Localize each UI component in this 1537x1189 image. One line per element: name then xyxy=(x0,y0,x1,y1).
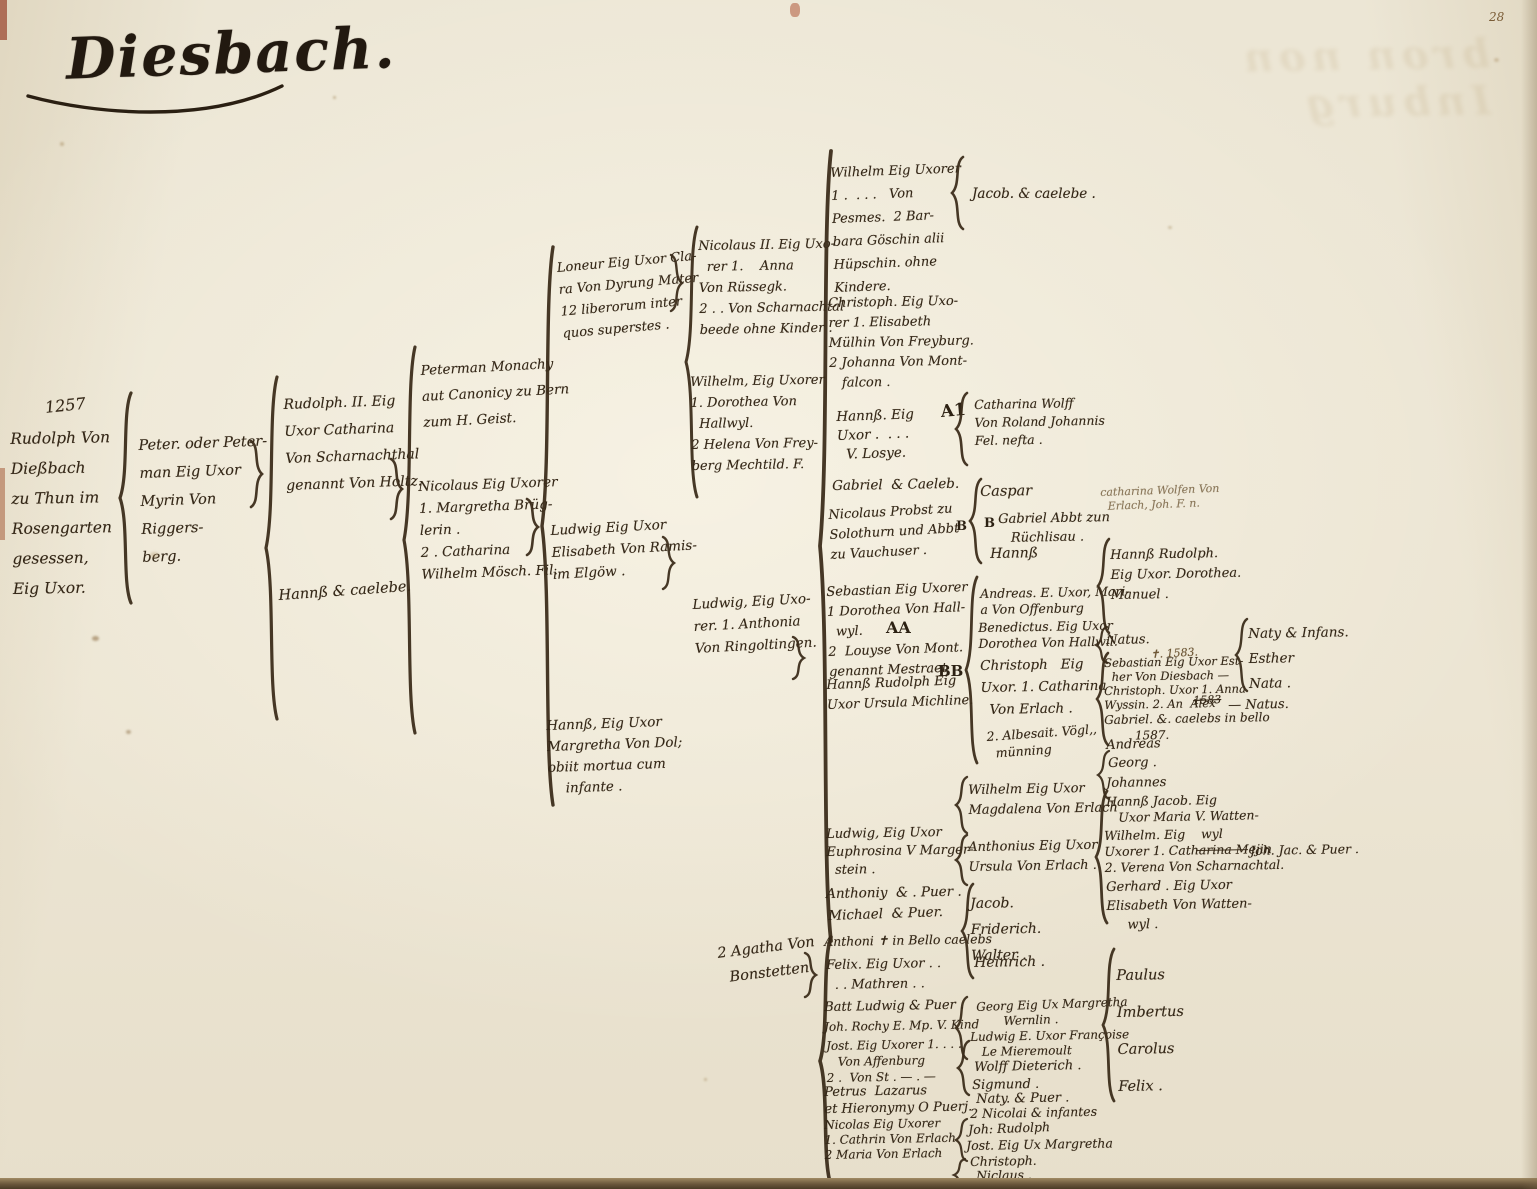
entry-wolff-dieterich: Wolff Dieterich . xyxy=(974,1058,1104,1075)
edge-mark xyxy=(0,468,5,540)
ref-mark-b-gabriel: B xyxy=(984,516,995,531)
entry-catharina-wolff: Catharina Wolff Von Roland Johannis Fel.… xyxy=(974,393,1125,450)
entry-jacob-caelebe: Jacob. & caelebe . xyxy=(972,186,1112,202)
foxing-spot xyxy=(704,1078,707,1081)
tree-brace xyxy=(964,576,980,764)
entry-hanns-jacob-wattenwyl: Hannß Jacob. Eig Uxor Maria V. Watten- xyxy=(1106,791,1297,826)
tree-brace xyxy=(668,254,684,312)
entry-naty-infans-group: Naty & Infans. Esther Nata . xyxy=(1248,620,1389,697)
edge-mark xyxy=(790,3,800,17)
entry-hanns-margretha: Hannß, Eig Uxor Margretha Von Dol; obiit… xyxy=(546,711,704,800)
foxing-spot xyxy=(150,552,159,558)
tree-brace xyxy=(1101,948,1117,1102)
entry-faint-catharina-wolfen: catharina Wolfen Von Erlach, Joh. F. n. xyxy=(1100,480,1261,514)
entry-paulus-imbertus-carolus-felix: Paulus Imbertus Carolus Felix . xyxy=(1116,956,1239,1106)
entry-andreas-2: Andreas xyxy=(1106,735,1206,753)
page-bottom-edge xyxy=(0,1178,1537,1189)
tree-brace xyxy=(524,498,540,556)
tree-brace xyxy=(954,392,970,466)
entry-felix-mathren: Felix. Eig Uxor . . . . Mathren . . xyxy=(826,953,977,996)
foxing-spot xyxy=(1168,226,1172,229)
entry-strike-1583: 1583 xyxy=(1193,693,1221,707)
entry-anthoniy-puer: Anthoniy & . Puer . xyxy=(826,883,976,902)
entry-peterman-monachy: Peterman Monachy aut Canonicy zu Bern zu… xyxy=(420,350,584,436)
ref-mark-aa: AA xyxy=(886,618,911,637)
tree-brace xyxy=(248,440,264,508)
entry-georg-2: Georg . xyxy=(1108,754,1198,771)
entry-hanns-losye: Hannß. Eig Uxor . . . . V. Losye. xyxy=(836,404,958,465)
show-through-ghost: bron non Inburg xyxy=(1059,30,1491,131)
corner-mark xyxy=(0,0,7,40)
foxing-spot xyxy=(92,636,99,641)
page-right-edge xyxy=(1521,0,1537,1189)
tree-brace xyxy=(790,636,806,680)
entry-heinrich: Heinrich . xyxy=(974,953,1084,971)
tree-brace xyxy=(950,156,966,230)
entry-christoph-freyburg: Christoph. Eig Uxo- rer 1. Elisabeth Mül… xyxy=(828,291,990,394)
entry-gabriel-abbt: Gabriel Abbt zun Rüchlisau . xyxy=(998,508,1139,548)
tree-brace xyxy=(802,952,818,998)
entry-caspar: Caspar xyxy=(980,482,1080,500)
ref-mark-b-probst: B xyxy=(956,519,967,534)
tree-brace xyxy=(118,392,134,604)
entry-gabriel-caeleb: Gabriel & Caeleb. xyxy=(832,475,982,494)
foxing-spot xyxy=(1494,58,1499,62)
entry-wilhelm-pesmes: Wilhelm Eig Uxorer 1 . . . . Von Pesmes.… xyxy=(830,156,995,299)
entry-date-1257: 1257 xyxy=(44,394,86,417)
entry-jost-margretha: Jost. Eig Ux Margretha xyxy=(966,1135,1136,1153)
page-number: 28 xyxy=(1489,10,1504,24)
entry-hanns-2: Hannß xyxy=(990,544,1080,562)
entry-johannes: Johannes xyxy=(1106,774,1206,791)
entry-natus-2: — Natus. xyxy=(1228,696,1338,713)
foxing-spot xyxy=(333,96,336,99)
foxing-spot xyxy=(60,142,64,146)
entry-joh-rudolph: Joh: Rudolph xyxy=(968,1117,1098,1137)
entry-michael-puer: Michael & Puer. xyxy=(828,903,978,924)
tree-brace xyxy=(264,376,280,720)
entry-hanns-rudolph-manuel: Hannß Rudolph. Eig Uxor. Dorothea. Manue… xyxy=(1110,543,1271,606)
title-flourish xyxy=(24,80,294,124)
entry-joh-jac-puer: Joh. Jac. & Puer . xyxy=(1250,841,1390,858)
foxing-spot xyxy=(126,730,131,734)
tree-brace xyxy=(660,536,676,590)
manuscript-page: Diesbach. 28 bron non Inburg 1257 Rudolp… xyxy=(0,0,1537,1189)
ref-mark-bb: BB xyxy=(938,662,963,680)
tree-brace xyxy=(402,346,418,734)
entry-gerhard-wattenwyl: Gerhard . Eig Uxor Elisabeth Von Watten-… xyxy=(1106,875,1287,935)
entry-ludwig-elisabeth: Ludwig Eig Uxor Elisabeth Von Ramis- im … xyxy=(550,512,703,586)
